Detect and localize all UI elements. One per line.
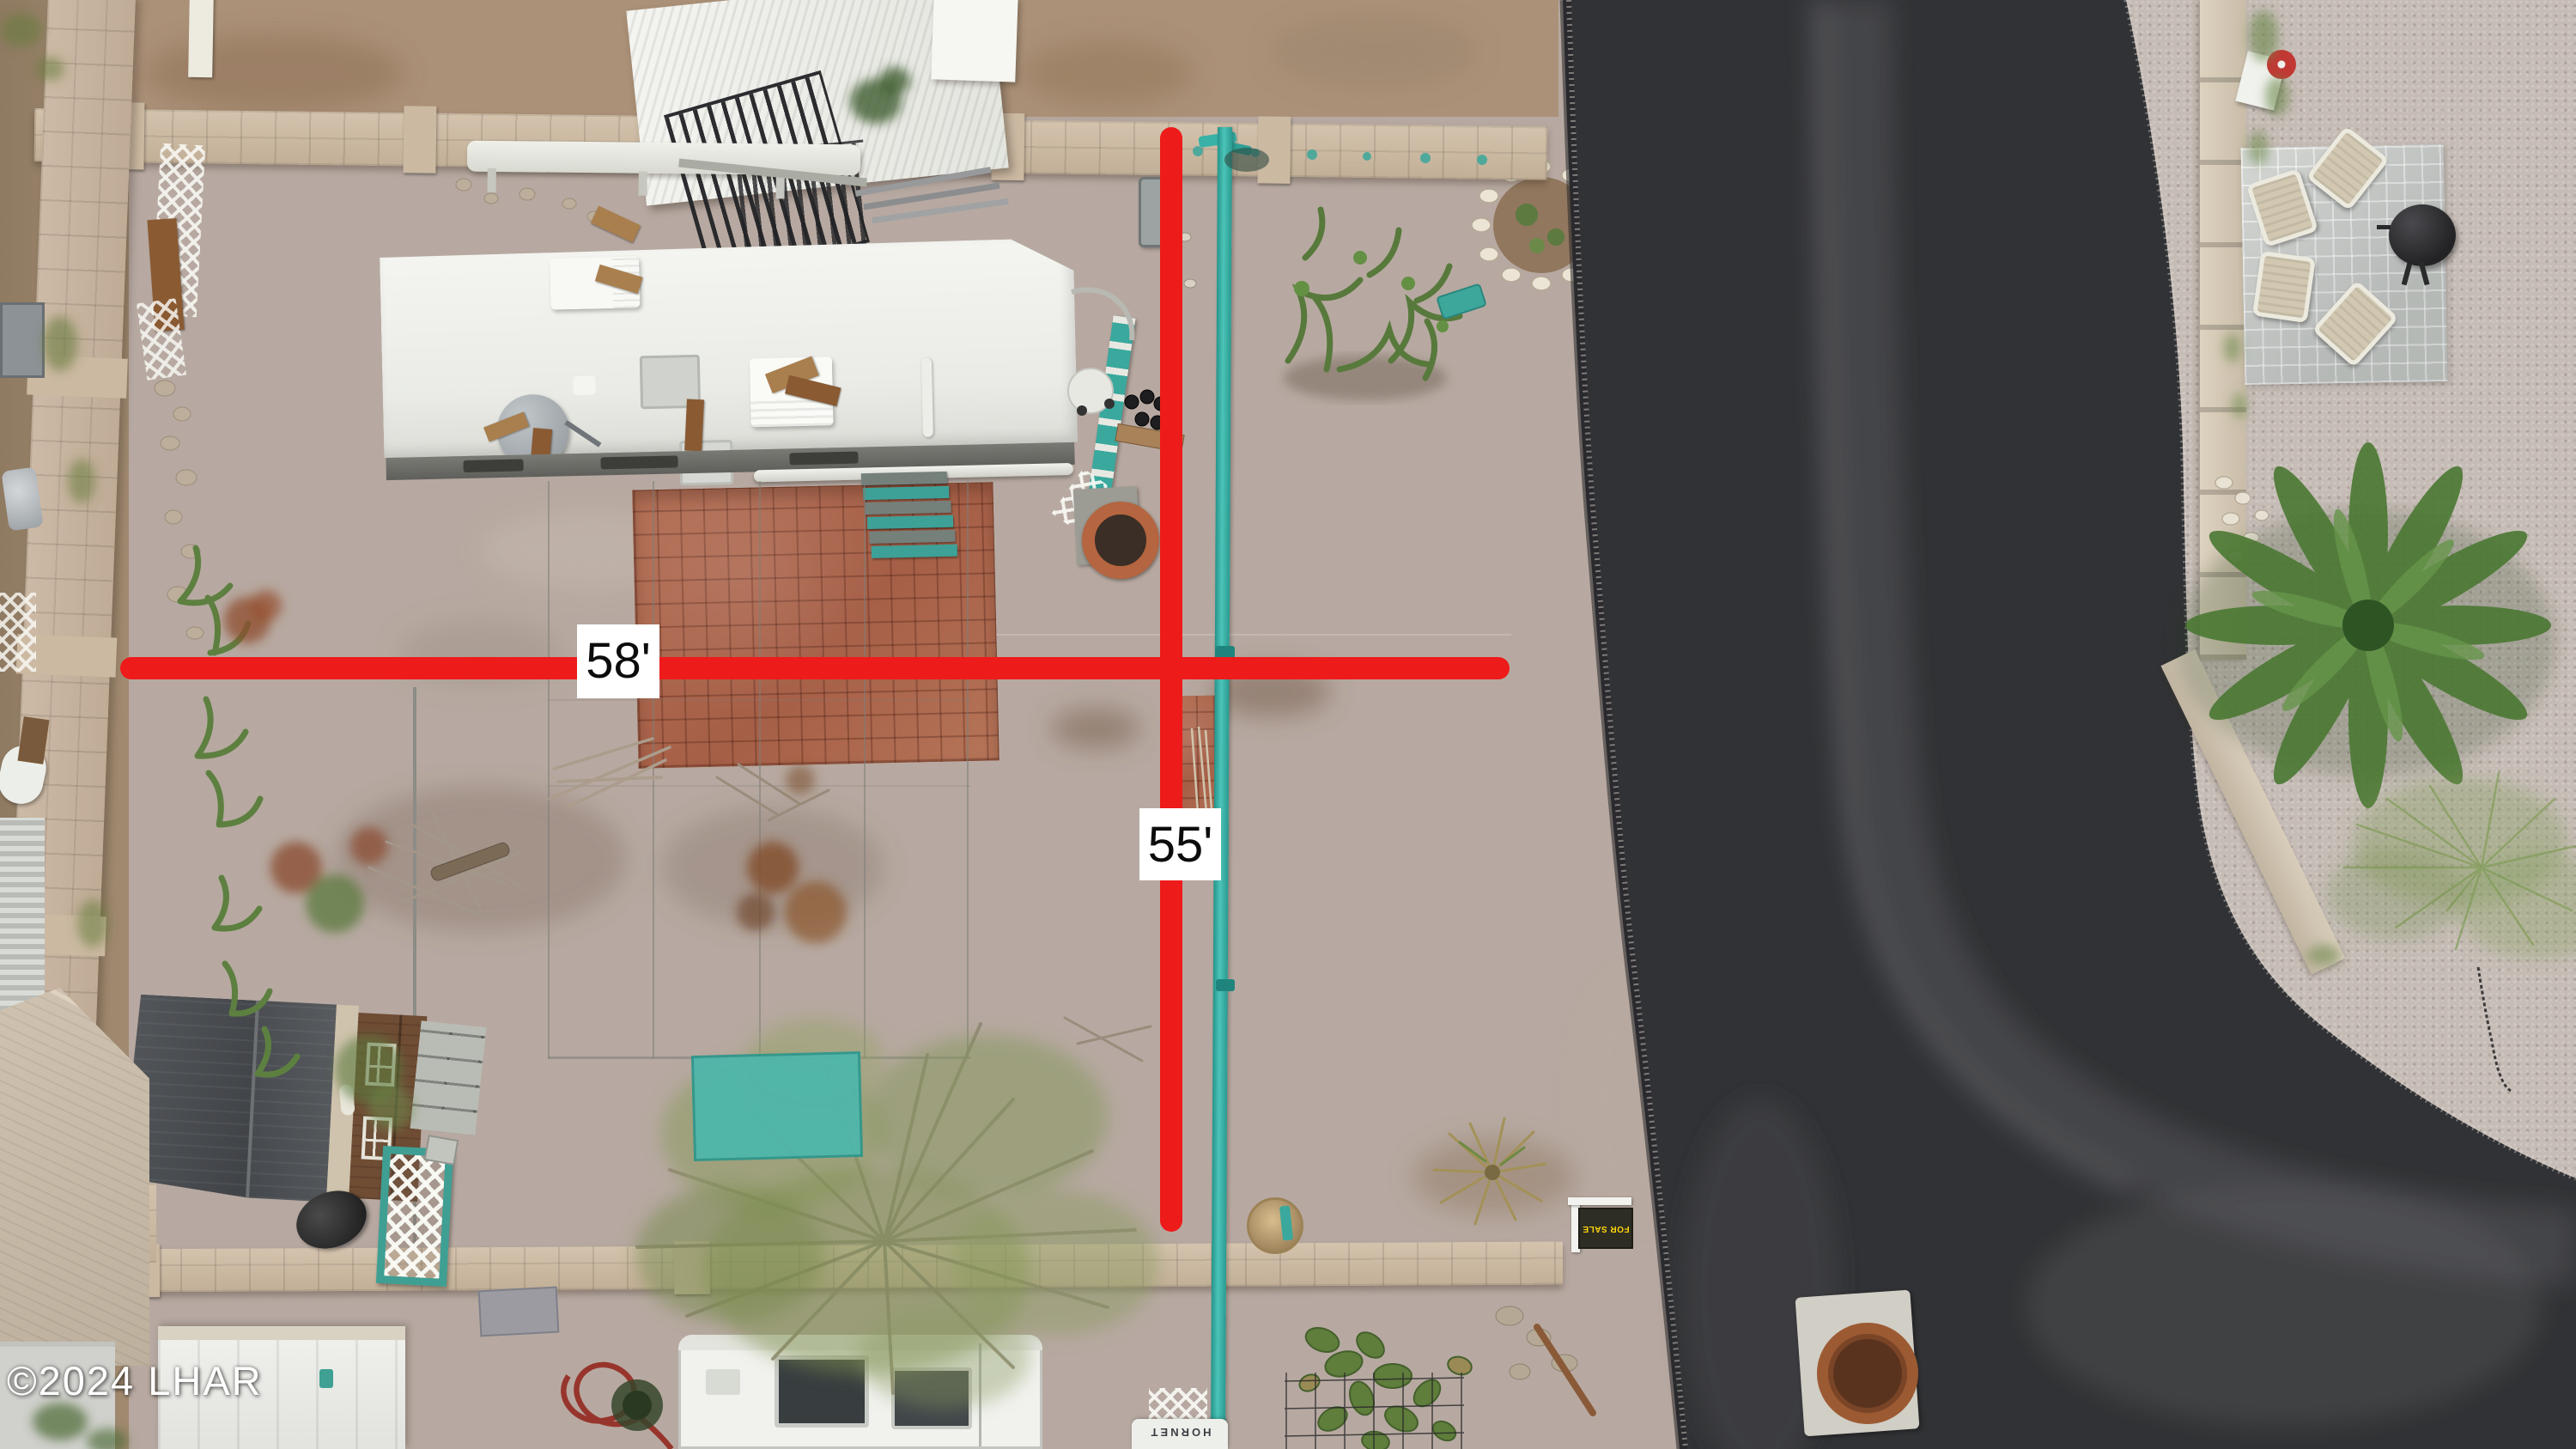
aerial-photo: HORNET FOR SALE — [0, 0, 2576, 1449]
dead-yucca — [1434, 1118, 1546, 1224]
teal-plywood — [692, 1052, 861, 1160]
rust-debris — [737, 765, 847, 943]
teal-board — [1437, 284, 1485, 320]
measure-label-58ft: 58' — [577, 624, 659, 698]
measure-line-vertical — [1160, 127, 1182, 1232]
prickly-pear-cluster — [1297, 1324, 1473, 1449]
vegetation-layer — [0, 0, 2576, 1449]
watermark: ©2024 LHAR — [7, 1357, 263, 1404]
measure-line-horizontal — [120, 657, 1510, 679]
red-garden-hose — [563, 1365, 671, 1449]
measure-label-55ft: 55' — [1139, 808, 1221, 880]
cholla-cactus — [1284, 210, 1460, 400]
rusty-pipe — [1537, 1327, 1593, 1413]
wispy-tree — [2327, 773, 2576, 1091]
hanging-chain — [2478, 967, 2511, 1091]
